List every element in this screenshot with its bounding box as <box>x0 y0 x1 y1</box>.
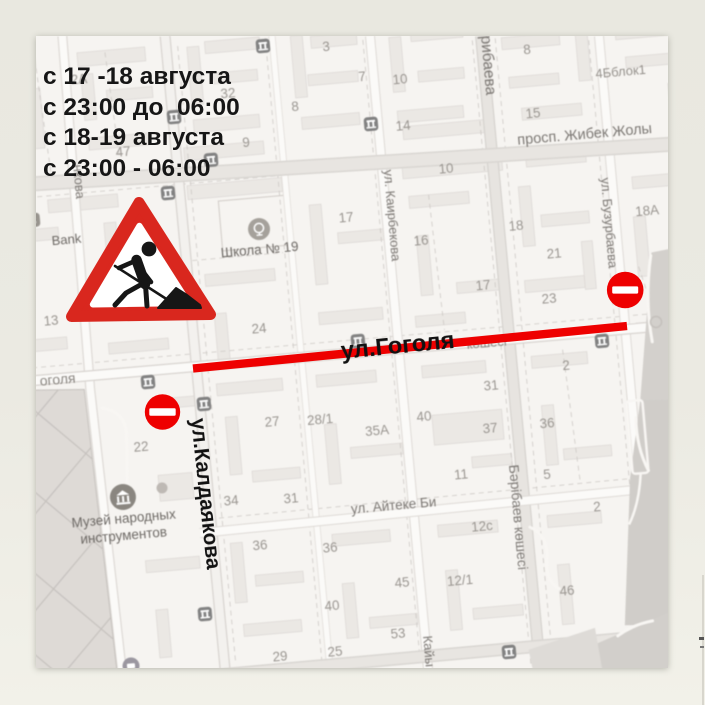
svg-text:8: 8 <box>523 42 532 58</box>
svg-text:45: 45 <box>394 574 410 590</box>
svg-text:13: 13 <box>43 312 59 328</box>
svg-text:оголя: оголя <box>39 370 76 389</box>
svg-text:4Бблок1: 4Бблок1 <box>595 62 647 81</box>
svg-text:27: 27 <box>264 413 280 429</box>
svg-text:10: 10 <box>392 71 408 87</box>
svg-text:34: 34 <box>223 492 240 508</box>
svg-text:8: 8 <box>291 99 300 115</box>
svg-text:40: 40 <box>324 597 340 613</box>
svg-text:29: 29 <box>272 648 288 664</box>
svg-text:47: 47 <box>115 143 131 159</box>
svg-text:22: 22 <box>133 438 149 454</box>
svg-text:15: 15 <box>525 105 541 121</box>
svg-text:37: 37 <box>482 420 498 436</box>
svg-text:нкова: нкова <box>70 164 88 200</box>
svg-text:11: 11 <box>454 466 469 482</box>
svg-text:14: 14 <box>395 117 412 133</box>
svg-text:25: 25 <box>327 643 343 659</box>
svg-text:10: 10 <box>438 160 454 176</box>
svg-text:23: 23 <box>541 290 557 306</box>
svg-text:Bank: Bank <box>51 230 82 248</box>
svg-text:31: 31 <box>483 377 499 393</box>
svg-text:Кайы: Кайы <box>420 635 438 668</box>
svg-text:18А: 18А <box>635 202 660 219</box>
svg-text:Школа № 19: Школа № 19 <box>220 239 299 261</box>
svg-text:28/1: 28/1 <box>306 411 333 428</box>
svg-text:2: 2 <box>593 499 602 515</box>
svg-text:17: 17 <box>338 209 354 225</box>
svg-text:36: 36 <box>539 415 555 431</box>
svg-text:2А: 2А <box>70 71 88 87</box>
svg-text:12с: 12с <box>471 518 494 535</box>
svg-text:53: 53 <box>390 625 406 641</box>
svg-text:2: 2 <box>562 358 571 374</box>
svg-text:31: 31 <box>283 490 299 506</box>
svg-text:36: 36 <box>322 539 338 555</box>
svg-text:18: 18 <box>508 217 524 233</box>
svg-text:35А: 35А <box>365 422 390 439</box>
svg-text:7: 7 <box>358 69 367 85</box>
svg-text:24: 24 <box>251 320 268 336</box>
svg-text:5: 5 <box>543 467 552 483</box>
svg-text:21: 21 <box>546 245 562 261</box>
svg-text:46: 46 <box>559 582 575 598</box>
svg-text:36: 36 <box>252 537 268 553</box>
svg-text:3: 3 <box>322 39 331 55</box>
svg-text:16: 16 <box>413 232 429 248</box>
svg-text:40: 40 <box>416 408 432 424</box>
svg-text:12/1: 12/1 <box>446 572 473 589</box>
svg-text:9: 9 <box>242 135 251 151</box>
svg-text:17: 17 <box>475 277 491 293</box>
svg-text:32: 32 <box>220 85 236 101</box>
